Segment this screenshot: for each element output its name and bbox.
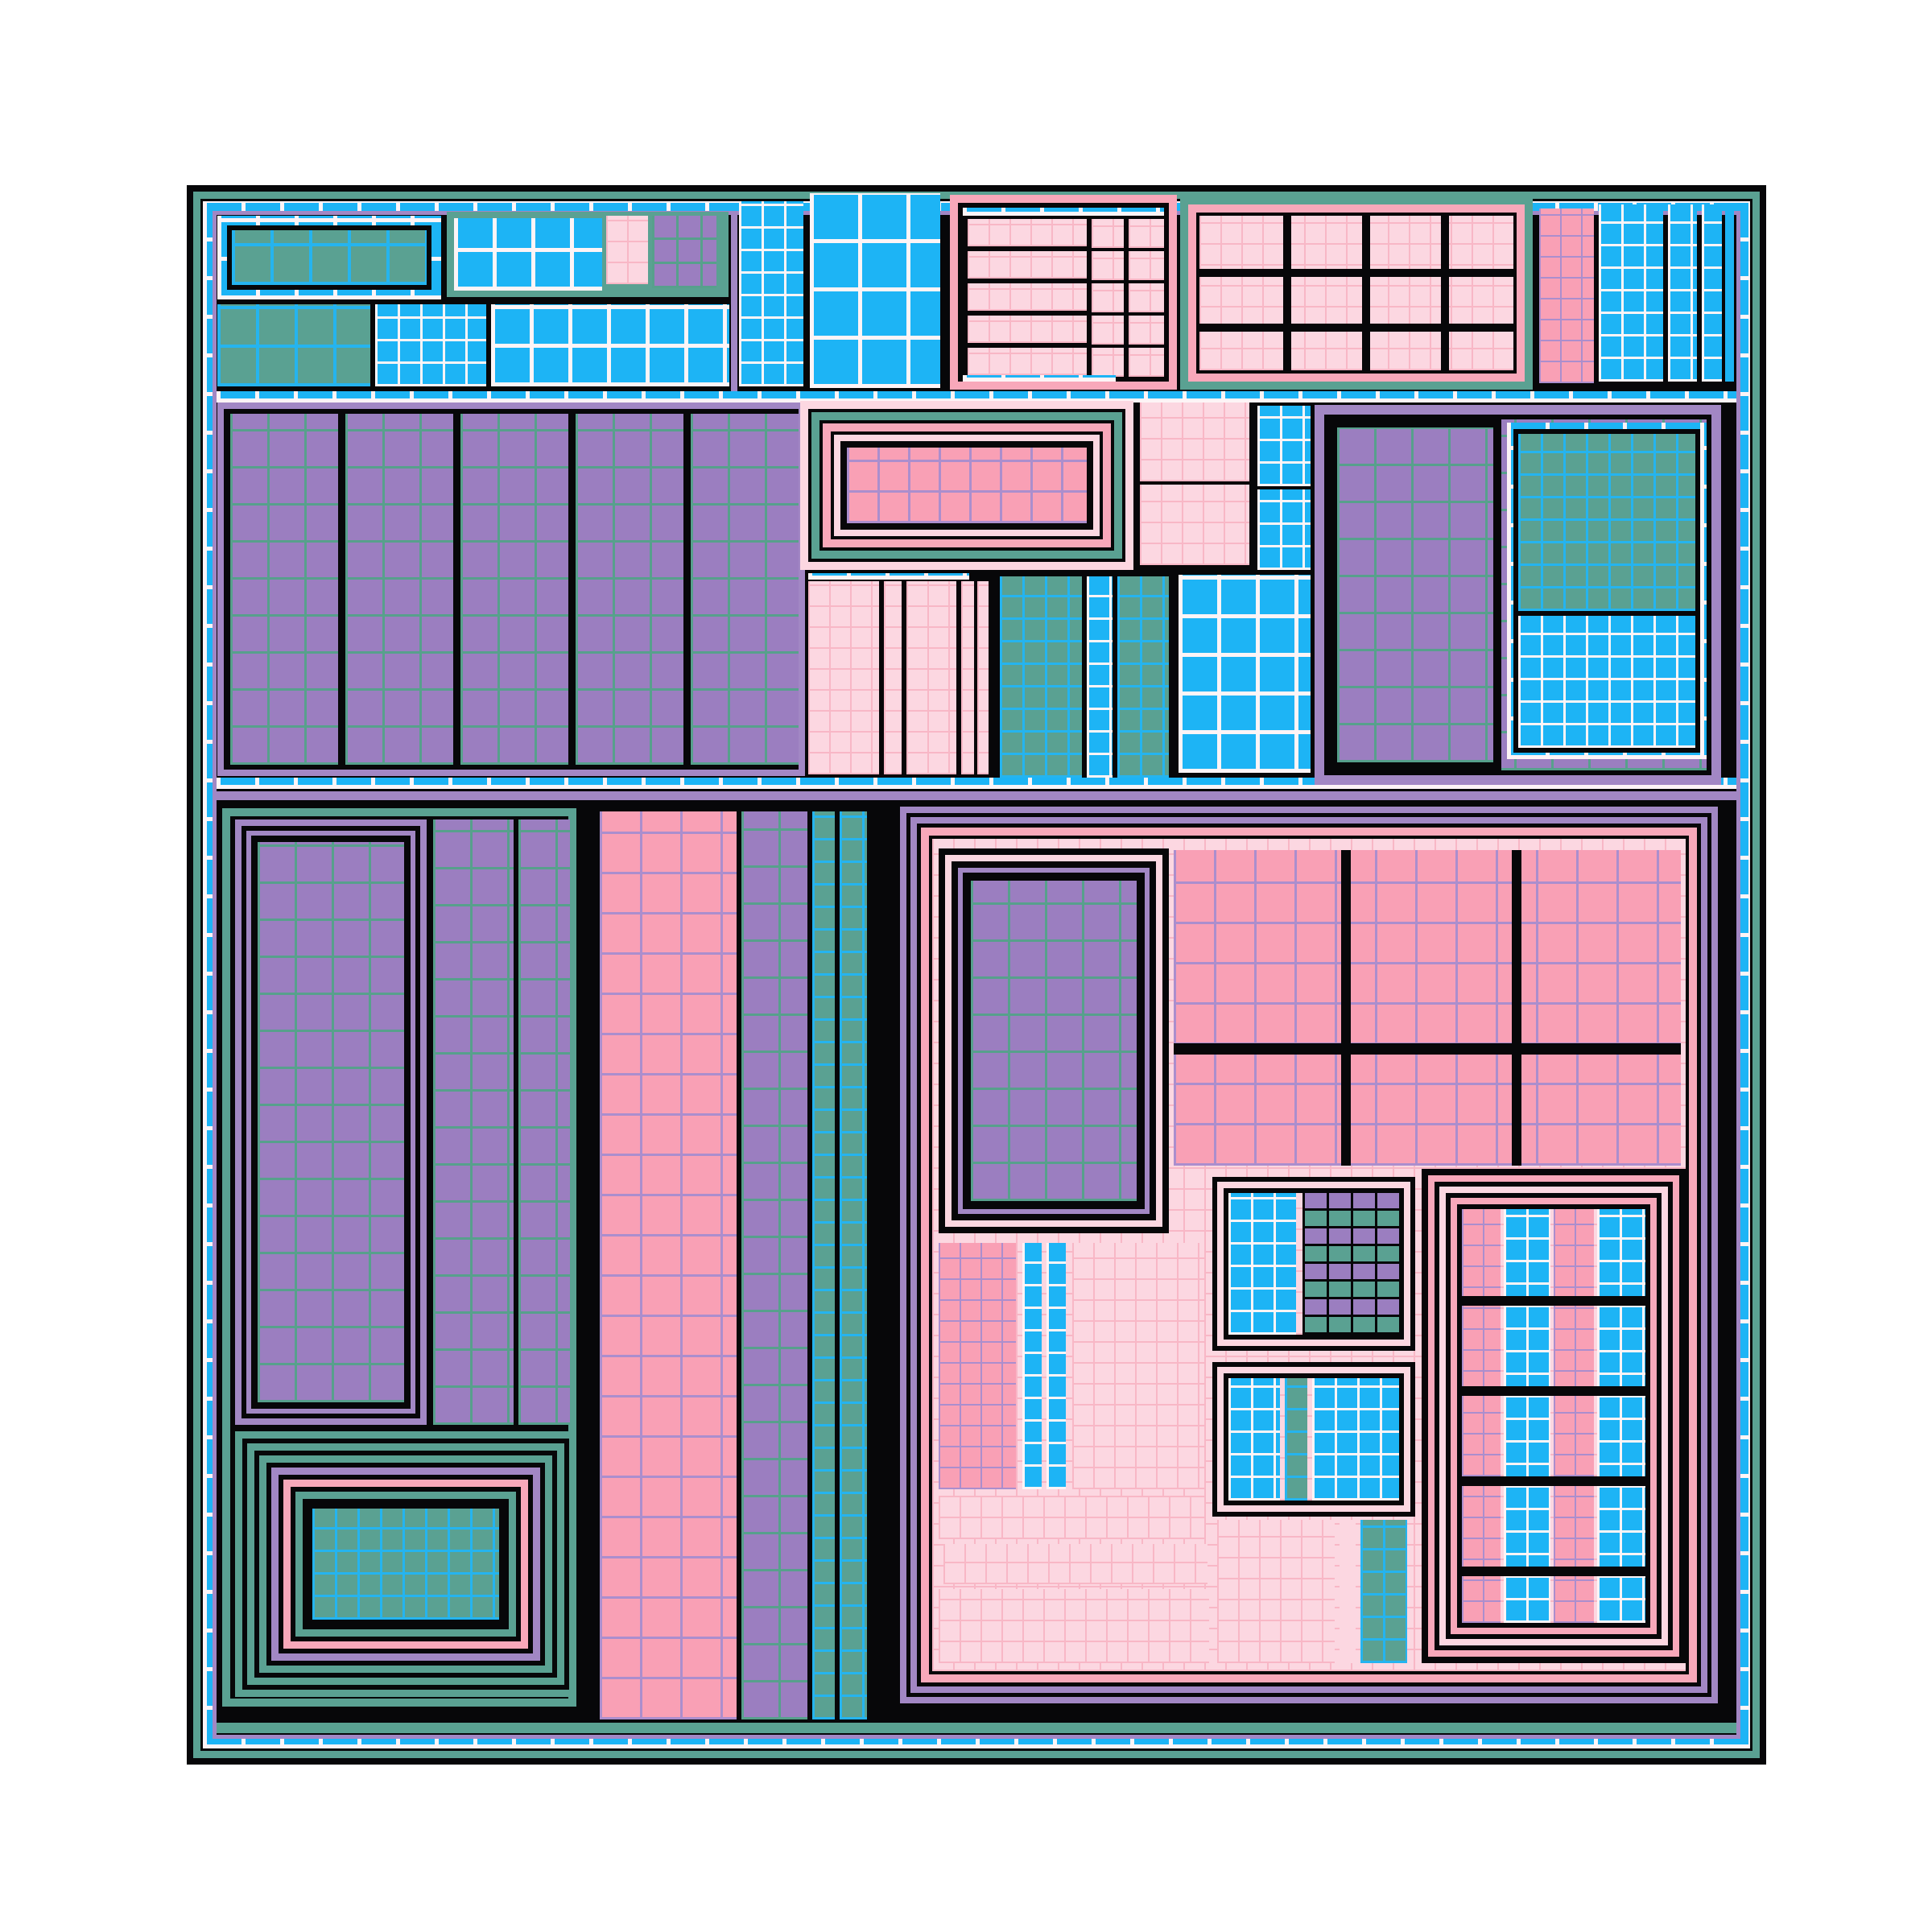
m2-nested-frame-ring-6: [834, 435, 1100, 536]
b3a-frame-ring-5: [971, 881, 1137, 1201]
b1d-nested-rings-ring-9: [291, 1487, 521, 1641]
m2-nested-frame-ring-7: [840, 441, 1093, 530]
b1a-purple-frame-ring-1: [242, 826, 420, 1418]
m3-pink-block: [1140, 402, 1249, 481]
m2-nested-frame-ring-1: [808, 409, 1125, 562]
b3b-div-v2: [1512, 850, 1521, 1166]
t7-strip-4: [968, 316, 1087, 343]
t8-cells: [1199, 216, 1513, 370]
b3c-blue-stripe-1: [1022, 1243, 1042, 1489]
t7-strip-2: [968, 251, 1087, 279]
m7-blue-stripe: [1087, 576, 1113, 778]
t2-pink-grid: [606, 216, 648, 284]
b3a-frame: [939, 848, 1169, 1233]
m5-blue-grid-1: [1257, 406, 1311, 486]
m1-col-4: [576, 414, 683, 765]
m2-nested-frame-ring-5: [831, 431, 1103, 539]
sep-bottom-teal: [217, 1723, 1736, 1733]
b1d-nested-rings-ring-6: [271, 1468, 540, 1661]
m7-teal-col-a: [1000, 576, 1082, 778]
t8-div-v3: [1441, 216, 1449, 370]
b3g-lightpink: [1217, 1520, 1335, 1663]
t7-block-b1: [1129, 219, 1164, 248]
t7-block-a1: [1092, 219, 1124, 248]
b3a-frame-ring-3: [958, 868, 1150, 1214]
t7-block-a3: [1092, 283, 1124, 312]
m5-blue-grid-2: [1257, 489, 1311, 570]
b1d-nested-rings-ring-7: [279, 1475, 533, 1653]
t7-strip-3: [968, 283, 1087, 311]
t6-blue-grid: [810, 193, 940, 388]
t7-blue-accent-bottom: [963, 375, 1116, 382]
b1a-purple-frame-ring-4: [258, 842, 404, 1402]
b3b-div-h: [1174, 1043, 1681, 1055]
m9b-teal-grid: [1518, 434, 1695, 611]
b1d-nested-rings-ring-10: [295, 1492, 516, 1637]
b3b-div-v1: [1341, 850, 1351, 1166]
b3h-hline-4: [1462, 1567, 1645, 1576]
b1a-purple-frame-ring-2: [246, 831, 415, 1414]
t8-div-v1: [1283, 216, 1291, 370]
m8-blue-grid: [1179, 575, 1311, 773]
t7-block-b5: [1129, 348, 1164, 377]
b1d-nested-rings-ring-1: [242, 1439, 569, 1690]
b3d-checker: [1302, 1193, 1399, 1335]
m6-strip-1: [808, 581, 879, 774]
b3c-salmon-col: [939, 1243, 1016, 1489]
m1-col-2: [345, 414, 453, 765]
b3f-bar-2: [943, 1544, 1207, 1584]
b1d-nested-rings-ring-2: [247, 1443, 564, 1685]
b1b-purple-col: [433, 819, 514, 1425]
t7-blue-accent-top: [963, 208, 1164, 216]
b3e-blue-grid-1: [1228, 1378, 1280, 1501]
b3h-hline-3: [1462, 1476, 1645, 1486]
b3h-col-3: [1554, 1209, 1594, 1623]
m2-nested-frame-ring-4: [823, 423, 1111, 547]
b3e-teal-col: [1285, 1378, 1307, 1501]
m9a-purple-grid: [1337, 427, 1493, 762]
t-group-purple-edge: [731, 211, 737, 391]
m2-nested-frame-ring-3: [819, 420, 1114, 551]
b2-salmon-col: [600, 811, 737, 1719]
m1-col-1: [230, 414, 338, 765]
b2-purple-col: [741, 811, 807, 1719]
b1d-nested-rings: [235, 1431, 576, 1697]
b3f-bar-1: [939, 1496, 1204, 1539]
b1c-purple-col: [518, 819, 570, 1425]
b3g-teal-col: [1360, 1520, 1407, 1663]
b3c-lightpink: [1072, 1243, 1204, 1489]
b3g-strip: [1340, 1520, 1356, 1663]
m2-nested-frame-ring-8: [847, 448, 1087, 523]
b1a-purple-frame-ring-3: [251, 836, 411, 1409]
b1d-nested-rings-ring-3: [254, 1451, 557, 1678]
t7-block-a2: [1092, 251, 1124, 280]
m7-teal-col-b: [1117, 576, 1169, 778]
b3f-bar-3: [939, 1589, 1209, 1663]
t7-block-b4: [1129, 316, 1164, 345]
t10-blue-grid: [1599, 204, 1663, 382]
m9b-blue-grid: [1518, 616, 1695, 748]
t5-blue-grid: [491, 304, 729, 386]
b3h-col-2: [1504, 1209, 1550, 1623]
sep-mid-purple: [217, 791, 1736, 800]
b1d-nested-rings-ring-12: [312, 1509, 499, 1620]
t3-teal-grid: [217, 304, 370, 386]
t6-blue-col: [739, 201, 803, 386]
m4-pink-block: [1140, 485, 1249, 565]
t7-strip-1: [968, 219, 1087, 246]
b1d-nested-rings-ring-8: [283, 1480, 528, 1649]
b3h-hline-2: [1462, 1386, 1645, 1396]
t9-salmon-col: [1539, 208, 1594, 383]
t2-blue-grid: [454, 218, 602, 291]
m6-strip-3: [906, 581, 956, 774]
m6-strip-4: [961, 581, 974, 774]
b2-teal-col-b: [840, 811, 867, 1719]
t8-div-h2: [1199, 324, 1513, 332]
b3b-salmon-blocks: [1174, 850, 1681, 1166]
b3a-frame-ring-1: [945, 855, 1162, 1227]
t8-div-h1: [1199, 269, 1513, 277]
b1d-nested-rings-ring-4: [259, 1455, 552, 1673]
m1-col-5: [691, 414, 799, 765]
b1a-purple-frame: [235, 819, 427, 1425]
b1d-nested-rings-ring-11: [303, 1499, 509, 1629]
b3h-hline-1: [1462, 1296, 1645, 1306]
b3h-col-4: [1597, 1209, 1645, 1623]
m6-blue-accent: [808, 573, 969, 580]
t7-block-b3: [1129, 283, 1164, 312]
b3h-col-1: [1462, 1209, 1501, 1623]
b3d-blue-grid: [1228, 1193, 1296, 1335]
m2-nested-frame: [800, 401, 1133, 570]
t2-purple-cells: [652, 216, 716, 288]
b3a-frame-ring-4: [963, 873, 1145, 1209]
m6-strip-2: [884, 581, 902, 774]
b3a-frame-ring-2: [952, 861, 1156, 1220]
abstract-mosaic-canvas: [0, 0, 1932, 1932]
b3e-blue-grid-2: [1312, 1378, 1399, 1501]
t8-div-v2: [1362, 216, 1370, 370]
b2-teal-col-a: [812, 811, 835, 1719]
t11-blue-strip-2: [1702, 204, 1722, 382]
t7-block-a4: [1092, 316, 1124, 345]
t7-block-b2: [1129, 251, 1164, 280]
t11-blue-strip-1: [1668, 204, 1697, 382]
t4-blue-grid: [375, 304, 486, 386]
m2-nested-frame-ring-2: [811, 412, 1122, 559]
m6-strip-5: [977, 581, 989, 774]
m1-col-3: [460, 414, 568, 765]
b1d-nested-rings-ring-5: [266, 1463, 545, 1666]
t7-strip-5: [968, 348, 1087, 375]
b3c-blue-stripe-2: [1046, 1243, 1066, 1489]
t11-blue-strip-3: [1725, 204, 1734, 382]
t1-teal-grid: [232, 230, 427, 285]
t7-block-a5: [1092, 348, 1124, 377]
